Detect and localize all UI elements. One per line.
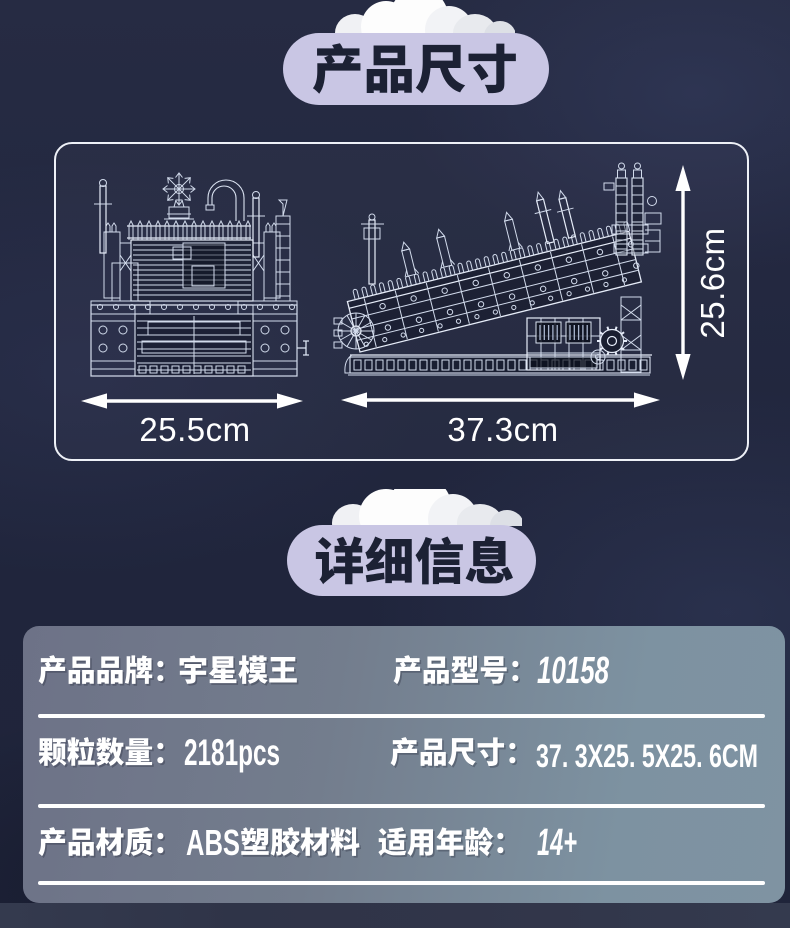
svg-text:10158: 10158 [537,650,610,692]
svg-text:ABS: ABS [186,822,240,863]
svg-text:2181pcs: 2181pcs [184,732,280,773]
svg-text:14+: 14+ [537,822,577,864]
svg-text:37. 3X25. 5X25. 6CM: 37. 3X25. 5X25. 6CM [536,738,758,774]
